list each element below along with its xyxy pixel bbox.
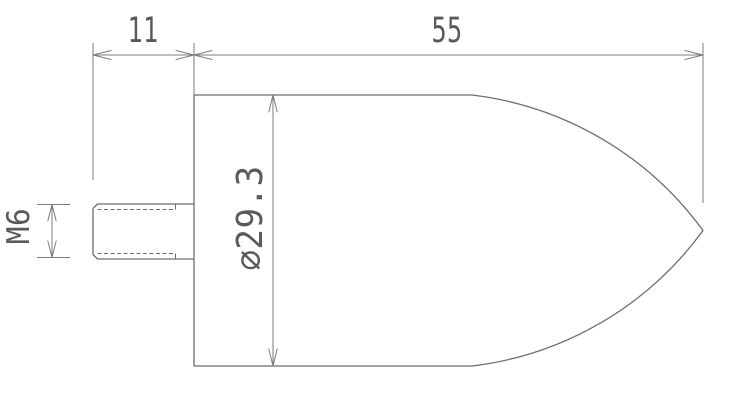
- drawing-geometry: [0, 0, 744, 401]
- dimension-label-body-length: 55: [418, 14, 476, 48]
- dimension-label-stud-length: 11: [114, 14, 172, 48]
- dimension-label-diameter: ⌀29.3: [233, 152, 269, 285]
- part-outline: [93, 95, 703, 366]
- dimension-arrowheads: [48, 51, 703, 367]
- dimension-label-thread: M6: [3, 188, 35, 264]
- thread-dashed-lines: [98, 210, 176, 254]
- technical-drawing: 11 55 ⌀29.3 M6: [0, 0, 744, 401]
- stud-outline: [93, 204, 194, 259]
